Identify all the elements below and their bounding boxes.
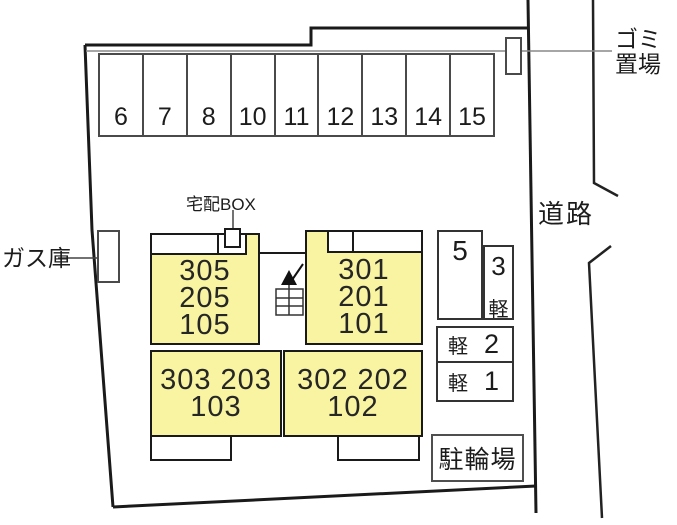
stall-number: 14 [414,103,442,132]
parking-stall: 12 [319,55,363,135]
garbage-label-line1: ゴミ [615,27,661,52]
kei-mark: 軽 [448,330,468,359]
room-number: 303 203 [160,367,272,394]
building-block-upper-right: 301 201 101 [305,230,423,345]
stall-number: 8 [202,103,216,132]
room-numbers-upper-left: 305 205 105 [152,235,258,343]
stall-number: 6 [114,103,128,132]
site-boundary-bottom [113,486,536,507]
stall-number: 12 [326,103,354,132]
stall-number: 1 [484,366,499,397]
building-block-upper-left: 305 205 105 [150,233,260,345]
parking-stall: 14 [407,55,451,135]
room-number: 105 [179,312,230,339]
stall-number: 5 [452,235,468,266]
parking-stall: 6 [100,55,144,135]
stairs-icon [276,264,303,315]
garbage-area-label: ゴミ 置場 [615,27,661,77]
balcony-lower-left [150,437,232,461]
kei-mark: 軽 [448,367,468,396]
parking-stall-2-kei: 軽 2 [436,326,514,363]
stall-number: 11 [284,103,310,132]
bicycle-parking-label: 駐輪場 [438,440,516,476]
parking-stall-5: 5 [437,230,483,320]
room-number: 205 [179,285,230,312]
stall-number: 13 [370,103,398,132]
delivery-box-label: 宅配BOX [186,192,256,217]
site-plan: 6 7 8 10 11 12 13 14 15 ゴミ 置場 道路 ガス庫 宅配B… [0,0,677,525]
road-near-edge [528,0,536,513]
room-numbers-lower-left: 303 203 103 [152,352,280,435]
parking-row: 6 7 8 10 11 12 13 14 15 [98,53,495,137]
room-numbers-lower-right: 302 202 102 [285,352,421,435]
room-number: 302 202 [297,367,409,394]
parking-stall: 11 [276,55,320,135]
parking-stall-1-kei: 軽 1 [436,363,514,402]
parking-stall: 15 [451,55,493,135]
building-block-lower-left: 303 203 103 [150,350,282,437]
stall-number: 3 [491,251,505,282]
parking-stall-3-kei: 3 軽 [483,245,514,320]
parking-stall: 10 [232,55,276,135]
room-number: 101 [338,311,389,338]
road-far-edge-lower [589,246,611,518]
gas-storage-label: ガス庫 [2,246,71,271]
garbage-area-box [505,37,522,75]
room-number: 201 [338,284,389,311]
road-label: 道路 [538,202,594,227]
gas-storage-box [97,230,120,283]
parking-stall: 8 [188,55,232,135]
kei-mark: 軽 [489,293,509,322]
parking-stall: 7 [144,55,188,135]
stall-number: 15 [458,103,486,132]
stall-number: 10 [239,103,267,132]
room-numbers-upper-right: 301 201 101 [307,232,421,343]
garbage-label-line2: 置場 [615,52,661,77]
building-block-lower-right: 302 202 102 [283,350,423,437]
bicycle-parking-box: 駐輪場 [431,434,524,482]
site-boundary-top [85,28,528,45]
stall-number: 7 [158,103,172,132]
room-number: 103 [190,394,241,421]
parking-stall: 13 [363,55,407,135]
room-number: 102 [327,394,378,421]
stall-number: 2 [484,329,499,360]
room-number: 305 [179,258,230,285]
room-number: 301 [338,257,389,284]
delivery-box [224,228,241,248]
balcony-lower-right [337,437,420,461]
